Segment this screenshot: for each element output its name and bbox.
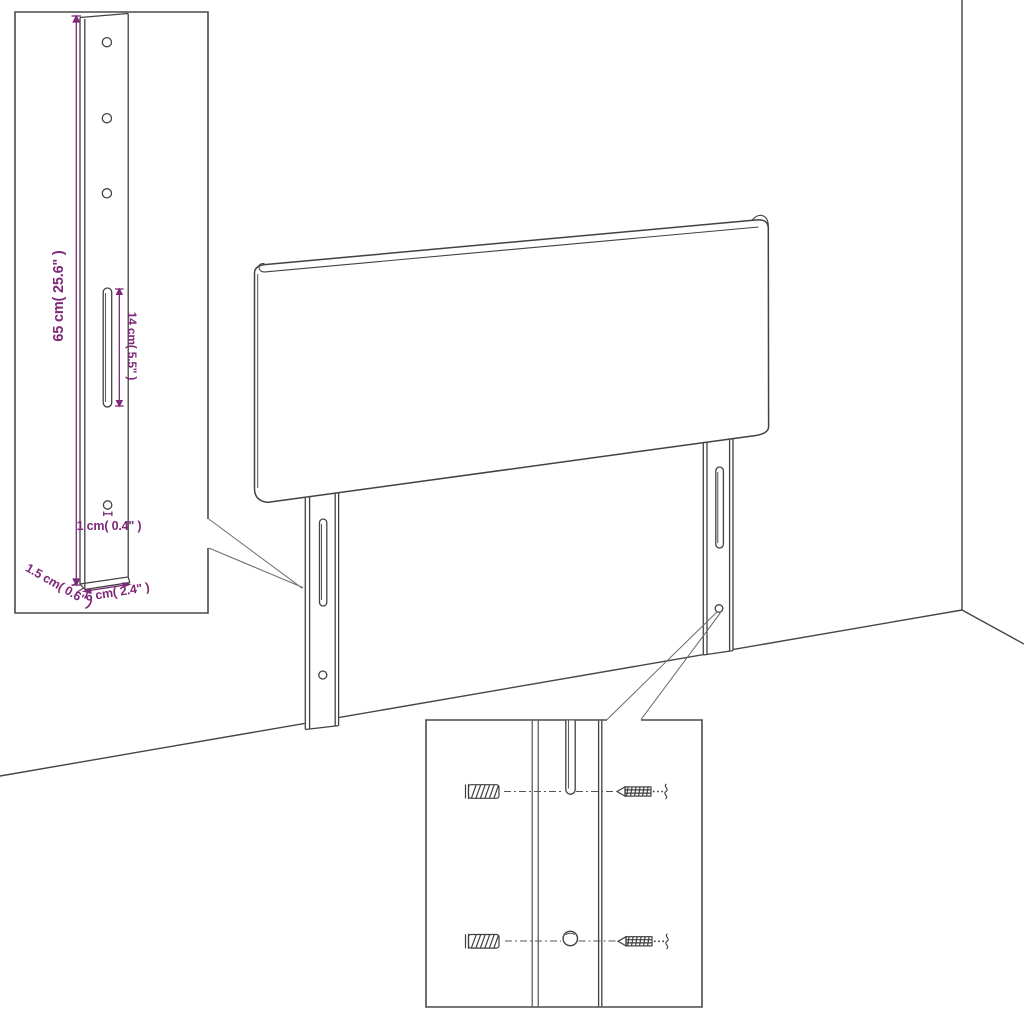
mounting-detail-inset — [426, 720, 702, 1007]
left-leg-hole — [319, 671, 327, 679]
height-dimension-label: 65 cm( 25.6" ) — [51, 250, 67, 341]
bracket-hole-1 — [102, 38, 111, 47]
bracket-detail-inset: 65 cm( 25.6" ) 14 cm( 5.5" ) 1 cm( 0.4" … — [15, 12, 208, 613]
mounting-callout-line-right — [641, 613, 720, 720]
headboard-diagram: 65 cm( 25.6" ) 14 cm( 5.5" ) 1 cm( 0.4" … — [0, 0, 1024, 1024]
callout-lines — [209, 519, 721, 720]
right-leg-slot — [716, 467, 724, 548]
mounting-slot — [566, 721, 575, 795]
headboard-panel — [255, 215, 769, 502]
right-leg — [703, 436, 734, 655]
left-leg — [305, 488, 340, 730]
bracket-small-hole — [103, 501, 111, 509]
right-leg-hole — [715, 605, 723, 613]
floor-line-right — [962, 610, 1024, 644]
bracket-hole-2 — [102, 114, 111, 123]
bracket-hole-3 — [102, 189, 111, 198]
hole-dimension-label: 1 cm( 0.4" ) — [77, 519, 142, 533]
diagram-canvas: 65 cm( 25.6" ) 14 cm( 5.5" ) 1 cm( 0.4" … — [0, 0, 1024, 1024]
left-leg-slot — [320, 519, 327, 606]
slot-dimension-label: 14 cm( 5.5" ) — [125, 312, 139, 381]
bracket-slot — [103, 288, 112, 407]
mounting-callout-line-left — [607, 612, 717, 720]
